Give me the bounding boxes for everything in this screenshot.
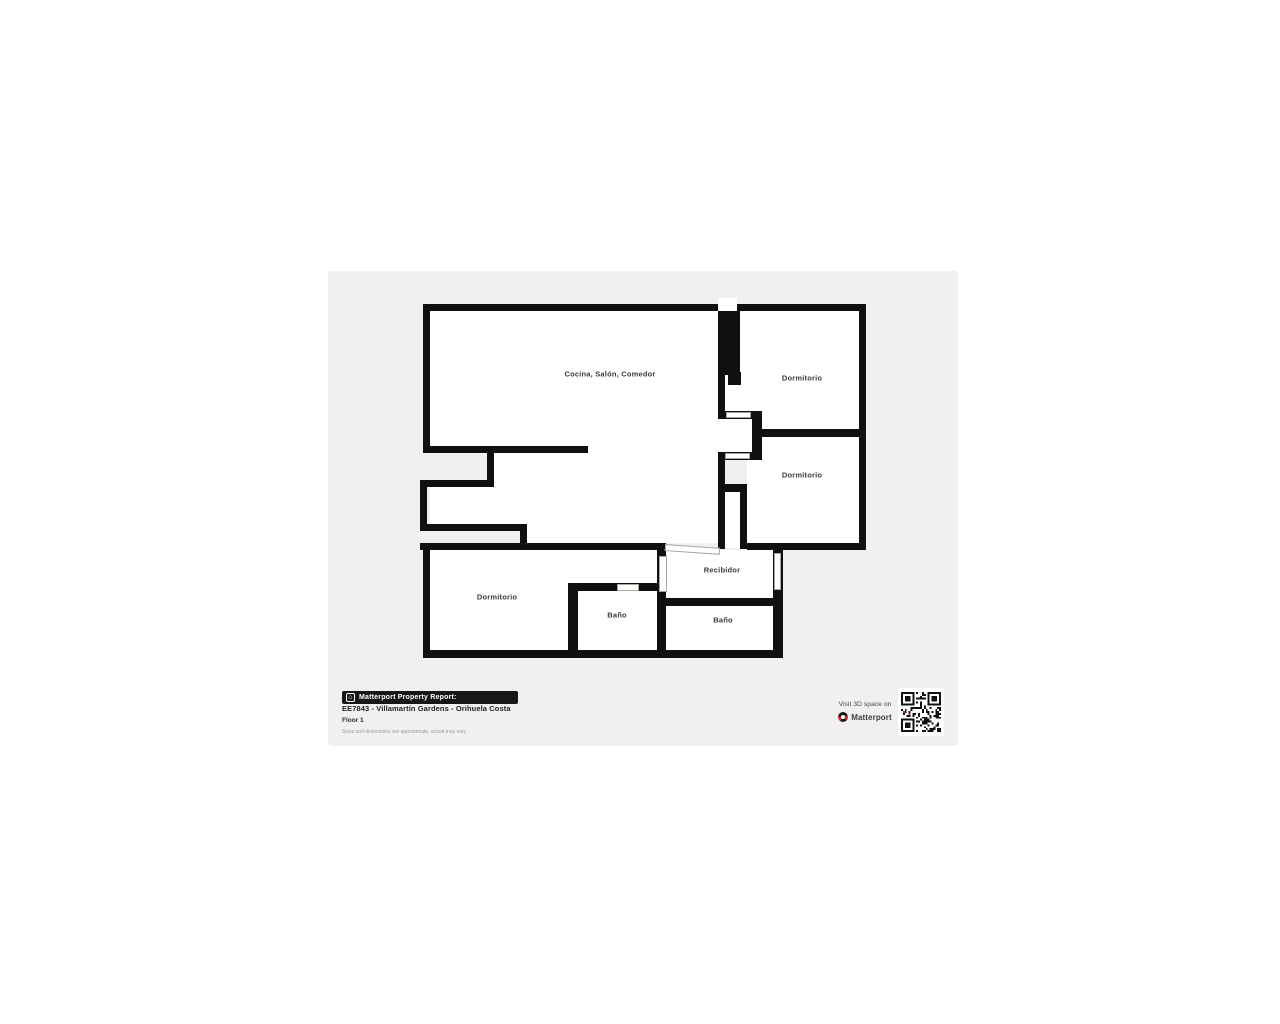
room-label-hall: Recibidor: [704, 566, 740, 575]
wall-segment: [423, 543, 430, 658]
property-title: EE7843 - Villamartín Gardens - Orihuela …: [342, 704, 511, 713]
wall-segment: [747, 543, 866, 550]
wall-segment: [420, 480, 494, 487]
visit-3d-text: Visit 3D space on: [820, 701, 910, 708]
wall-segment: [423, 650, 783, 658]
door-marker: [725, 453, 750, 459]
door-marker: [617, 584, 639, 591]
room-label-living: Cocina, Salón, Comedor: [564, 370, 655, 379]
report-badge: ⌂ Matterport Property Report:: [342, 691, 518, 704]
room-label-bath-1: Baño: [607, 611, 627, 620]
wall-segment: [423, 446, 588, 453]
room-label-bath-2: Baño: [713, 616, 733, 625]
wall-segment: [737, 304, 866, 311]
wall-segment: [423, 304, 430, 453]
wall-opening: [718, 298, 737, 311]
floorplan-report-page: Cocina, Salón, Comedor Dormitorio Dormit…: [328, 271, 958, 746]
matterport-brand-name: Matterport: [851, 713, 892, 722]
exterior-notch: [427, 453, 487, 480]
room-fill-bath-2: [666, 606, 773, 650]
house-icon: ⌂: [346, 693, 355, 702]
wall-segment: [718, 311, 740, 375]
room-fill-shaft: [725, 492, 740, 548]
wall-segment: [718, 375, 725, 412]
room-fill-bedroom-2: [747, 437, 859, 543]
wall-segment: [760, 429, 862, 437]
room-fill-bedroom-3: [430, 550, 657, 650]
matterport-brand: Matterport: [820, 712, 910, 722]
wall-segment: [718, 492, 725, 549]
room-fill-living: [430, 311, 718, 543]
room-label-bedroom-2: Dormitorio: [782, 471, 822, 480]
room-label-bedroom-1: Dormitorio: [782, 374, 822, 383]
disclaimer-text: Sizes and dimensions are approximate, ac…: [342, 729, 466, 735]
wall-segment: [568, 583, 657, 591]
floor-label: Floor 1: [342, 717, 364, 724]
wall-segment: [728, 372, 741, 385]
wall-segment: [859, 304, 866, 550]
door-marker: [774, 553, 781, 590]
exterior-notch: [427, 531, 520, 543]
wall-segment: [657, 598, 783, 606]
room-fill-corridor: [718, 419, 753, 452]
wall-segment: [420, 524, 527, 531]
qr-code: [898, 688, 944, 736]
door-marker: [659, 556, 667, 592]
wall-segment: [568, 583, 578, 650]
wall-segment: [420, 543, 665, 550]
wall-segment: [423, 304, 718, 311]
door-marker: [726, 412, 751, 418]
wall-segment: [740, 484, 747, 549]
matterport-logo-icon: [838, 712, 848, 722]
qr-code-image: [901, 691, 941, 733]
report-badge-label: Matterport Property Report:: [359, 694, 457, 701]
floor-plan: Cocina, Salón, Comedor Dormitorio Dormit…: [328, 271, 958, 746]
room-label-bedroom-3: Dormitorio: [477, 593, 517, 602]
